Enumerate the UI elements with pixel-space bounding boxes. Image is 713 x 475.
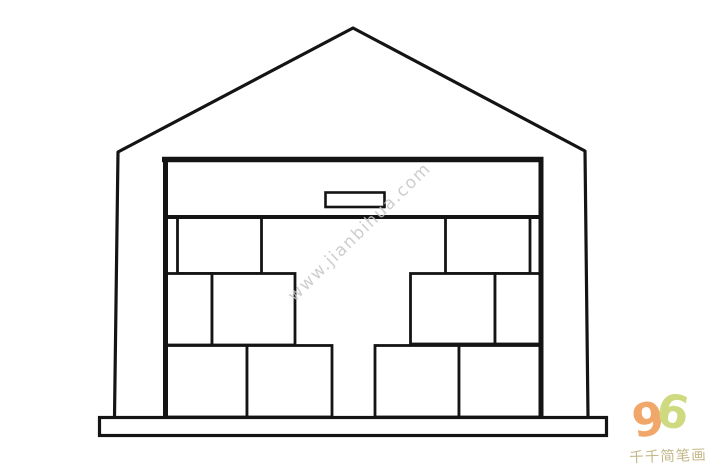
stacked-box xyxy=(459,346,541,418)
stacked-box xyxy=(212,274,295,346)
drawing-canvas: www.jianbihua.com 96 千千简笔画 xyxy=(0,0,713,475)
warehouse-line-drawing xyxy=(0,0,713,475)
site-logo: 96 千千简笔画 xyxy=(628,390,713,475)
logo-caption: 千千简笔画 xyxy=(618,443,713,467)
stacked-box xyxy=(166,274,213,346)
logo-digit-6: 6 xyxy=(653,383,687,439)
logo-digits: 96 xyxy=(632,390,682,442)
stacked-box xyxy=(178,218,262,274)
stacked-box xyxy=(495,274,541,345)
stacked-box xyxy=(247,346,332,418)
base-platform xyxy=(100,418,607,436)
stacked-box xyxy=(375,346,459,418)
stacked-box xyxy=(446,218,531,274)
line-art-group xyxy=(100,28,607,436)
stacked-box xyxy=(411,274,496,345)
stacked-box xyxy=(166,346,248,418)
door-sign xyxy=(326,193,385,208)
